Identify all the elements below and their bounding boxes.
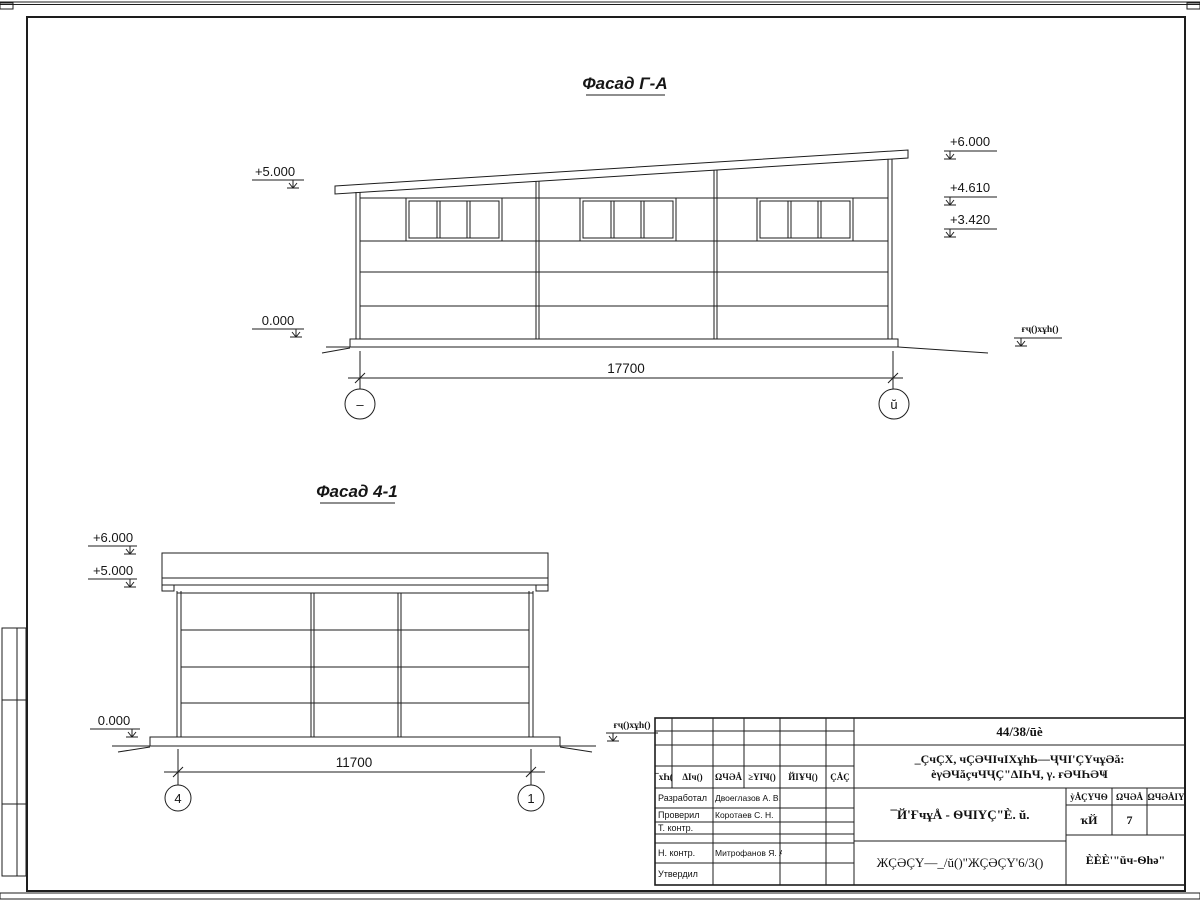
- roof-slope: [335, 150, 908, 194]
- drawing-sheet: Фасад Г-А: [0, 0, 1200, 900]
- axis-bubble-left: 4: [165, 785, 191, 811]
- sheets-total-header: ΩЧӘÅIҮ: [1147, 788, 1185, 805]
- elevation-mark: 0.000: [90, 713, 140, 737]
- document-number: 44/38/ūè: [854, 718, 1185, 745]
- axis-letter: ŭ: [890, 397, 897, 412]
- siding-lines: [181, 630, 529, 703]
- role-name-ncontrol: Митрофанов Я. А.: [713, 843, 782, 863]
- window: [406, 198, 502, 241]
- facade-41-drawing: Фасад 4-1: [88, 482, 658, 811]
- elevation-mark: +3.420: [944, 212, 997, 237]
- ground-level-label: ғҷ()хұh(): [613, 720, 650, 731]
- elevation-mark: +6.000: [88, 530, 137, 554]
- window: [757, 198, 853, 241]
- elevation-value: +6.000: [950, 134, 990, 149]
- elevation-value: +5.000: [93, 563, 133, 578]
- sheet-number-value: 7: [1112, 805, 1147, 835]
- rev-header-izm: ¯хҺ(: [655, 766, 672, 788]
- sheet-name: ¯Й'ҒчұÅ - ѲЧIҮÇ"È. ŭ.: [854, 788, 1066, 841]
- document-code: ЖÇӘÇҮ—_/ŭ()"ЖÇӘÇҮ'6/3(): [854, 841, 1066, 885]
- rev-header-list: ΩЧӘÅ: [713, 766, 744, 788]
- role-name-checked: Коротаев С. Н.: [713, 808, 782, 822]
- ground-level-label: ғҷ()хұh(): [1021, 324, 1058, 335]
- sheet-number-header: ΩЧӘÅ: [1112, 788, 1147, 805]
- plinth-and-ground: [322, 339, 988, 353]
- role-label-checked: Проверил: [655, 808, 716, 822]
- elevation-mark: +6.000: [944, 134, 997, 159]
- axis-letter: –: [356, 397, 364, 412]
- ground-level-mark: ғҷ()хұh(): [606, 720, 658, 741]
- ground-level-mark: ғҷ()хұh(): [1014, 324, 1062, 346]
- parapet-fascia: [162, 553, 548, 591]
- role-label-developed: Разработал: [655, 788, 716, 808]
- left-margin-stamp-boxes: [2, 628, 26, 876]
- elevation-value: +3.420: [950, 212, 990, 227]
- elevation-mark: +4.610: [944, 180, 997, 205]
- role-label-tcontrol: Т. контр.: [655, 822, 716, 834]
- project-title-line2: èγӘЧăçчЧҶÇ"ΔIҺЧ, γ. ғӘЧҺӘҸ: [931, 767, 1108, 782]
- stage-value: ҡЙ: [1066, 805, 1112, 835]
- role-name-developed: Двоеглазов А. В.: [713, 788, 782, 808]
- axis-letter: 4: [174, 791, 181, 806]
- elevation-mark: +5.000: [88, 563, 137, 587]
- stage-header: ỳÅÇҮЧѲ: [1066, 788, 1112, 805]
- dimension-line: 17700: [348, 351, 903, 389]
- axis-bubble-right: ŭ: [879, 389, 909, 419]
- rev-header-dok: ≥YIҸ(): [744, 766, 780, 788]
- elevation-value: +6.000: [93, 530, 133, 545]
- role-label-approved: Утвердил: [655, 863, 716, 885]
- facade-41-title: Фасад 4-1: [316, 482, 397, 501]
- facade-ga-title: Фасад Г-А: [582, 74, 667, 93]
- walls-and-columns: [177, 591, 533, 737]
- elevation-value: 0.000: [262, 313, 295, 328]
- rev-header-data: ÇÅÇ: [826, 766, 854, 788]
- project-title: _ÇчÇХ, чÇӘЧIчIХұhЬ—ҶЧI'ÇҮчұӘă: èγӘЧăçчЧҶ…: [854, 745, 1185, 788]
- facade-ga-drawing: Фасад Г-А: [252, 74, 1062, 419]
- rev-header-koluch: ΔIч(): [672, 766, 713, 788]
- elevation-value: +4.610: [950, 180, 990, 195]
- axis-letter: 1: [527, 791, 534, 806]
- company-name: ÈÈÈ'"ŭч-Ѳһә": [1066, 835, 1185, 885]
- dimension-value: 17700: [607, 361, 645, 376]
- elevation-mark: +5.000: [252, 164, 304, 188]
- project-title-line1: _ÇчÇХ, чÇӘЧIчIХұhЬ—ҶЧI'ÇҮчұӘă:: [915, 752, 1125, 767]
- plinth-and-ground: [112, 737, 596, 752]
- axis-bubble-right: 1: [518, 785, 544, 811]
- window: [580, 198, 676, 241]
- dimension-value: 11700: [336, 755, 373, 770]
- rev-header-podp: ЙIҰЧ(): [780, 766, 826, 788]
- role-label-ncontrol: Н. контр.: [655, 843, 716, 863]
- elevation-mark: 0.000: [252, 313, 304, 337]
- dimension-line: 11700: [164, 749, 545, 785]
- elevation-value: +5.000: [255, 164, 295, 179]
- axis-bubble-left: –: [345, 389, 375, 419]
- elevation-value: 0.000: [98, 713, 131, 728]
